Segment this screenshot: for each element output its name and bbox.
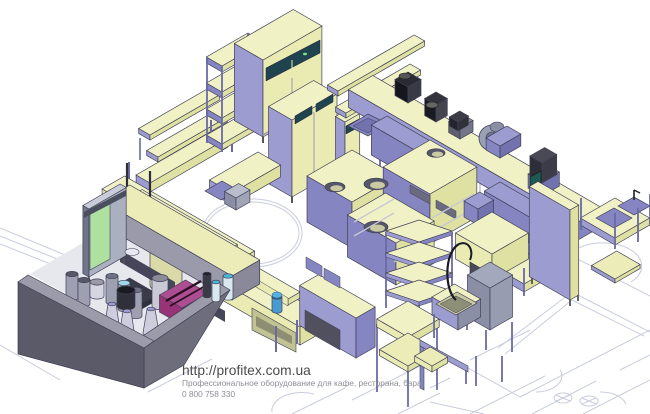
svg-text:0 800 758 330: 0 800 758 330 bbox=[182, 389, 235, 399]
svg-text:http://profitex.com.ua: http://profitex.com.ua bbox=[182, 363, 311, 378]
svg-text:Профессиональное оборудование: Профессиональное оборудование для кафе, … bbox=[182, 378, 422, 388]
